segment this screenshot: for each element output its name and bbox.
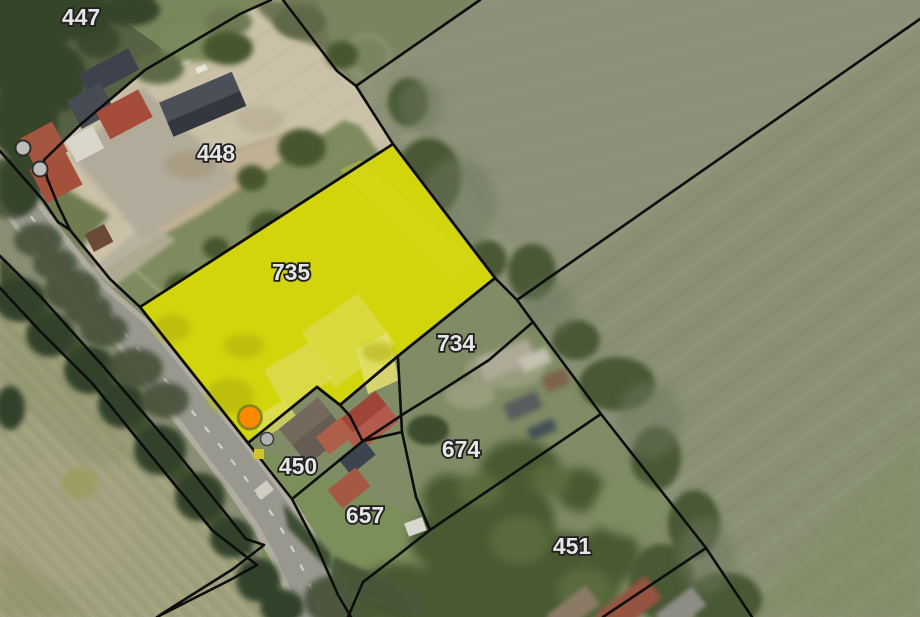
svg-text:451: 451 bbox=[553, 533, 592, 559]
svg-text:448: 448 bbox=[197, 140, 236, 166]
svg-text:735: 735 bbox=[272, 259, 311, 285]
svg-text:674: 674 bbox=[442, 436, 481, 462]
svg-text:447: 447 bbox=[62, 4, 100, 30]
svg-text:450: 450 bbox=[279, 453, 317, 479]
svg-text:657: 657 bbox=[346, 502, 384, 528]
svg-text:734: 734 bbox=[437, 330, 476, 356]
